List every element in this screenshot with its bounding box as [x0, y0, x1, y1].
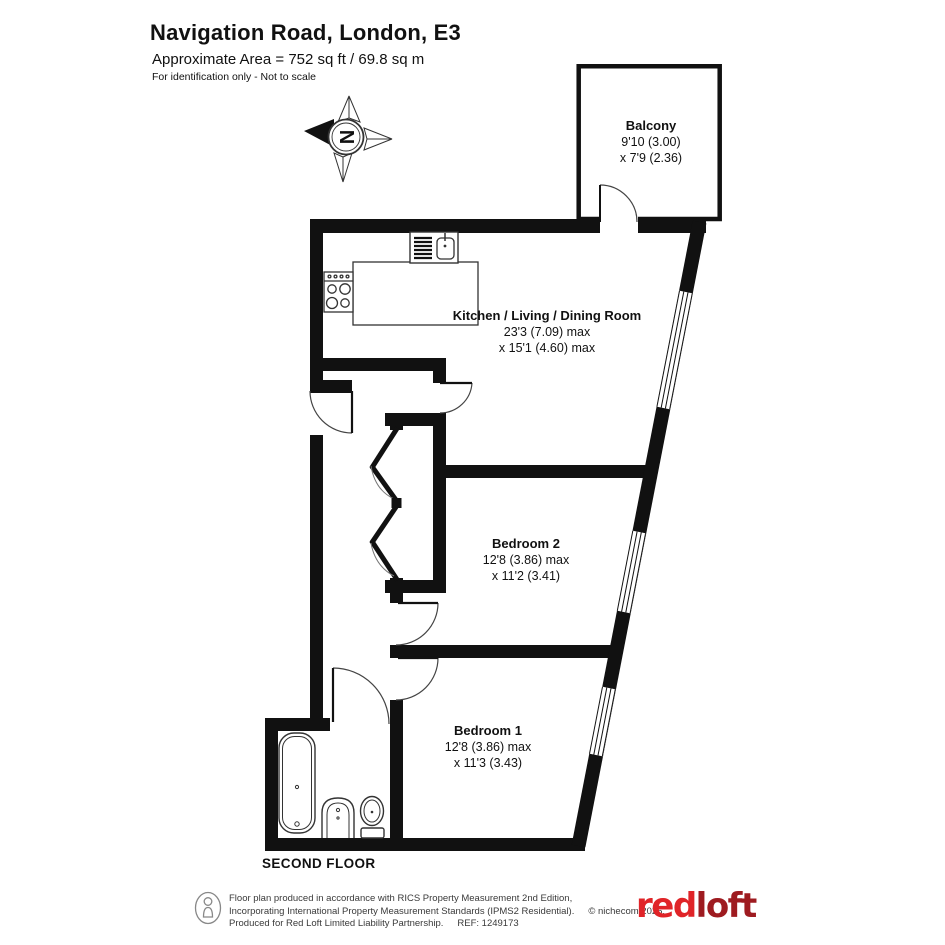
toilet-icon	[361, 797, 385, 839]
window-2	[617, 531, 645, 613]
room-dim1: 12'8 (3.86) max	[483, 552, 569, 568]
room-dim1: 9'10 (3.00)	[620, 134, 682, 150]
room-label-balcony: Balcony 9'10 (3.00) x 7'9 (2.36)	[620, 118, 682, 166]
bathroom-door-arc	[333, 668, 389, 724]
footer-line-1: Floor plan produced in accordance with R…	[229, 893, 665, 906]
room-dim1: 23'3 (7.09) max	[453, 324, 642, 340]
compass-north-point	[338, 96, 349, 122]
redloft-logo: redloft	[636, 886, 756, 926]
kitchen-door-arc	[440, 383, 472, 413]
door-leaves	[333, 383, 472, 722]
bedroom2-door-arc	[396, 603, 438, 645]
room-label-bedroom2: Bedroom 2 12'8 (3.86) max x 11'2 (3.41)	[483, 536, 569, 584]
floorplan-drawing: N	[0, 0, 945, 945]
compass-east-point	[364, 128, 392, 139]
footer-disclaimer: Floor plan produced in accordance with R…	[229, 893, 665, 931]
floor-label: SECOND FLOOR	[262, 856, 376, 871]
window-3	[590, 687, 616, 756]
compass-south-point	[334, 153, 343, 182]
footer-ipms-text: Incorporating International Property Mea…	[229, 906, 574, 917]
room-dim1: 12'8 (3.86) max	[445, 739, 531, 755]
room-name: Kitchen / Living / Dining Room	[453, 308, 642, 324]
compass: N	[304, 96, 392, 182]
basin-icon	[322, 798, 354, 838]
room-label-bedroom1: Bedroom 1 12'8 (3.86) max x 11'3 (3.43)	[445, 723, 531, 771]
footer-line-2: Incorporating International Property Mea…	[229, 906, 665, 919]
room-label-kitchen-living-dining: Kitchen / Living / Dining Room 23'3 (7.0…	[453, 308, 642, 356]
room-name: Bedroom 1	[445, 723, 531, 739]
compass-north-label: N	[335, 130, 357, 144]
window-1	[657, 291, 692, 409]
cupboard-bifold-doors	[371, 430, 402, 578]
bathtub-icon	[279, 733, 315, 833]
hob-icon	[324, 272, 353, 312]
kitchen-sink	[410, 232, 458, 263]
room-name: Bedroom 2	[483, 536, 569, 552]
bifold-hinge	[392, 498, 402, 508]
room-dim2: x 11'3 (3.43)	[445, 755, 531, 771]
logo-loft: loft	[696, 886, 756, 926]
entry-door-arc	[310, 391, 352, 433]
footer-ref: REF: 1249173	[457, 918, 518, 929]
floorplan-page: Navigation Road, London, E3 Approximate …	[0, 0, 945, 945]
logo-red: red	[636, 886, 696, 926]
room-dim2: x 7'9 (2.36)	[620, 150, 682, 166]
person-badge-icon	[194, 891, 222, 930]
room-name: Balcony	[620, 118, 682, 134]
footer-produced-for: Produced for Red Loft Limited Liability …	[229, 918, 443, 929]
footer-line-3: Produced for Red Loft Limited Liability …	[229, 918, 665, 931]
room-dim2: x 11'2 (3.41)	[483, 568, 569, 584]
room-dim2: x 15'1 (4.60) max	[453, 340, 642, 356]
bedroom1-door-arc	[396, 658, 438, 700]
